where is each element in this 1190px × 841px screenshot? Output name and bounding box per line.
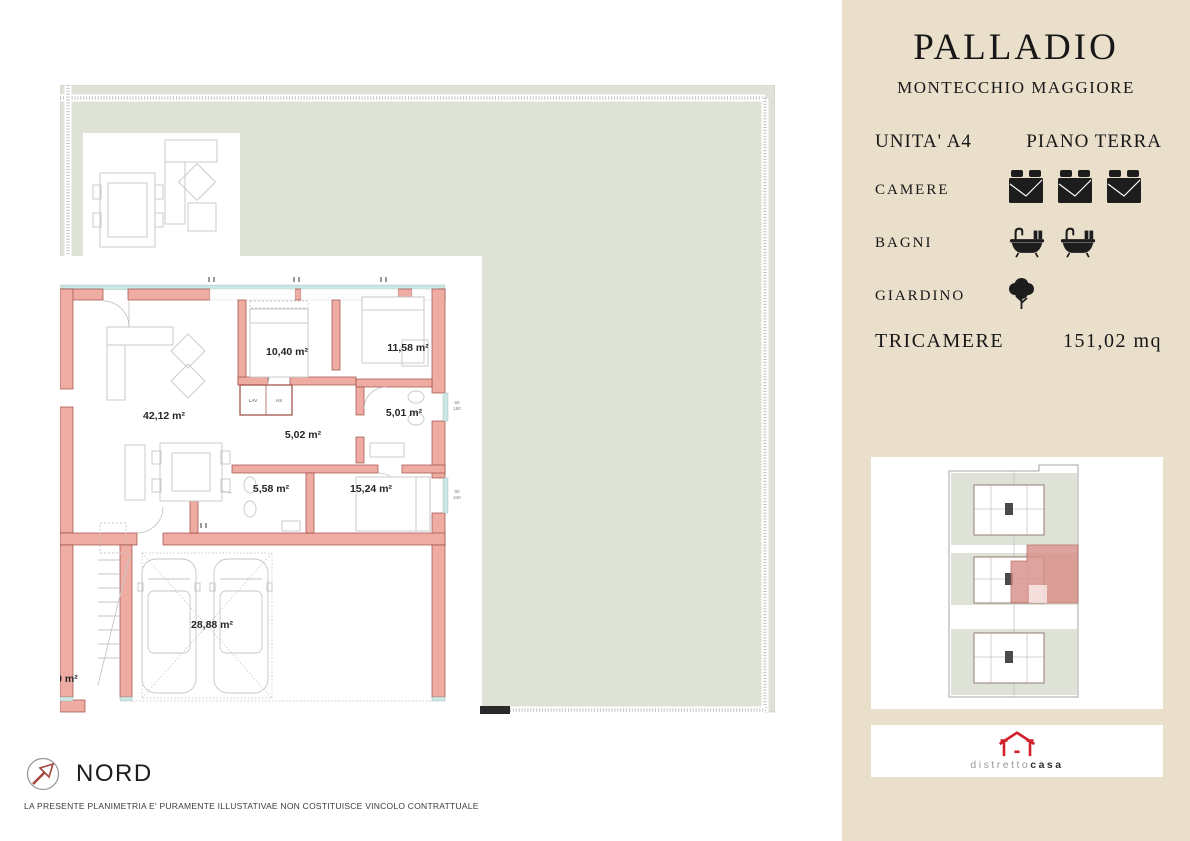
site-plan-thumbnail	[871, 457, 1163, 709]
project-location: MONTECCHIO MAGGIORE	[842, 78, 1190, 98]
feature-label-giardino: GIARDINO	[875, 288, 965, 305]
room-label-bedroom3: 15,24 m²	[350, 483, 393, 495]
floor-plan-sheet: LAV AS	[0, 0, 842, 841]
compass-label: NORD	[76, 760, 153, 788]
feature-label-bagni: BAGNI	[875, 235, 933, 252]
agency-logo-card: distrettocasa	[871, 725, 1163, 777]
plan-scale-bar	[480, 706, 510, 714]
site-plan-card	[871, 457, 1163, 709]
project-title: PALLADIO	[842, 26, 1190, 69]
bedroom1-furniture	[250, 301, 308, 377]
north-arrow-icon	[24, 755, 62, 793]
total-area-value: 151,02 mq	[1063, 330, 1162, 353]
room-label-bedroom2: 11,58 m²	[387, 342, 429, 354]
agency-name-bold: casa	[1030, 759, 1063, 771]
floor-label: PIANO TERRA	[1026, 131, 1162, 153]
room-label-garage: 28,88 m²	[191, 619, 234, 631]
room-label-living: 42,12 m²	[143, 410, 186, 422]
apartment-type-label: TRICAMERE	[875, 330, 1004, 353]
bed-icon	[1057, 170, 1093, 204]
camere-icons	[1008, 170, 1142, 204]
agency-name-light: distretto	[970, 759, 1030, 771]
agency-name: distrettocasa	[970, 759, 1063, 771]
house-logo-icon	[995, 731, 1039, 757]
room-label-hall: 5,02 m²	[285, 429, 322, 441]
closet-label-lav: LAV	[249, 398, 259, 404]
svg-text:90: 90	[454, 489, 460, 494]
svg-text:60: 60	[454, 400, 460, 405]
disclaimer-text: LA PRESENTE PLANIMETRIA E' PURAMENTE ILL…	[24, 801, 479, 811]
info-sidebar: PALLADIO MONTECCHIO MAGGIORE UNITA' A4 P…	[842, 0, 1190, 841]
room-label-partial: 50 m²	[60, 673, 78, 685]
unit-label: UNITA' A4	[875, 131, 972, 153]
bedroom2-furniture	[362, 297, 428, 366]
floor-plan-drawing: LAV AS	[60, 85, 775, 717]
tree-icon	[1008, 276, 1035, 310]
bathtub-icon	[1008, 224, 1046, 259]
type-area-row: TRICAMERE 151,02 mq	[875, 330, 1162, 353]
bagni-icons	[1008, 224, 1097, 259]
bed-icon	[1008, 170, 1044, 204]
room-label-bath2: 5,58 m²	[253, 483, 290, 495]
svg-text:240: 240	[453, 495, 461, 500]
unit-floor-row: UNITA' A4 PIANO TERRA	[875, 131, 1162, 153]
north-compass: NORD	[24, 755, 153, 793]
bed-icon	[1106, 170, 1142, 204]
svg-text:160: 160	[453, 406, 461, 411]
bathtub-icon	[1059, 224, 1097, 259]
feature-label-camere: CAMERE	[875, 182, 950, 199]
room-label-bath1: 5,01 m²	[386, 407, 423, 419]
giardino-icons	[1008, 276, 1035, 310]
room-label-bedroom1: 10,40 m²	[266, 346, 309, 358]
closet-label-as: AS	[276, 398, 282, 404]
